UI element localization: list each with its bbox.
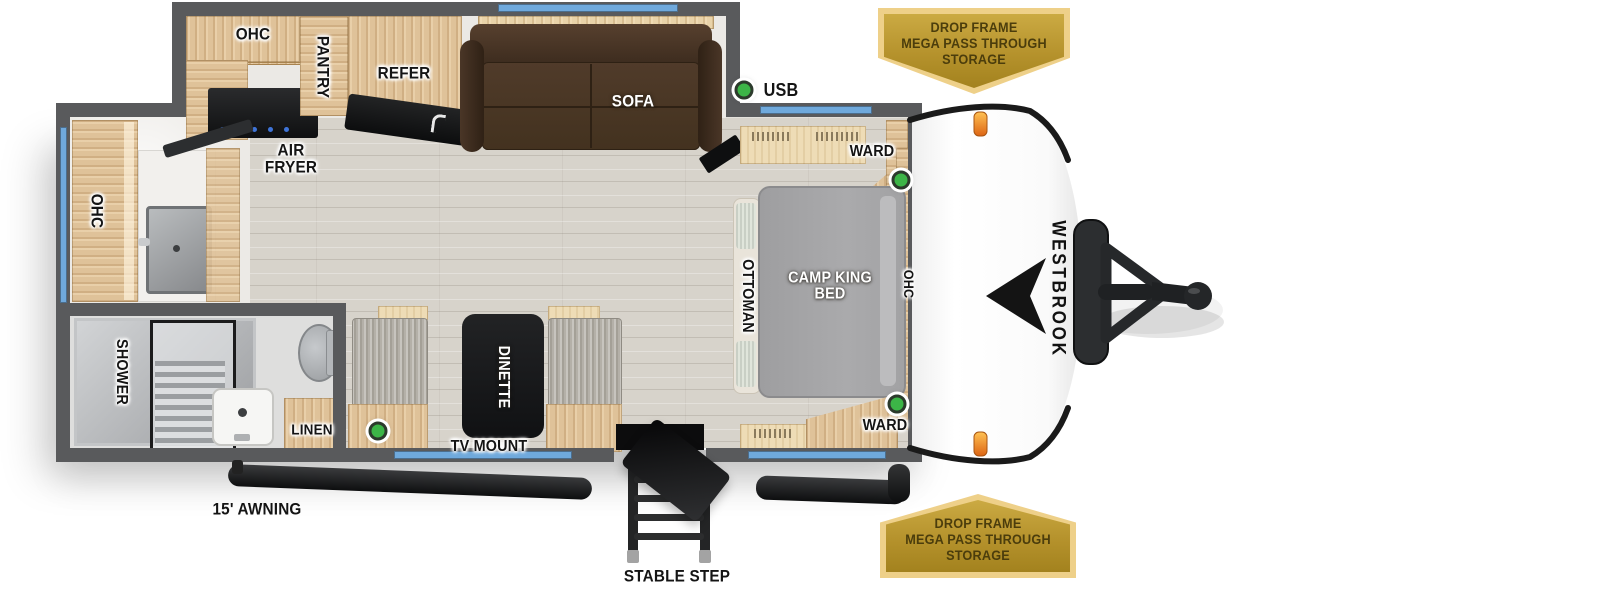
label-refer: REFER xyxy=(378,64,431,81)
label-ward-top: WARD xyxy=(850,144,895,160)
label-usb: USB xyxy=(764,81,799,99)
label-sofa: SOFA xyxy=(612,92,654,109)
awning-tube xyxy=(228,464,593,500)
label-ward-bottom: WARD xyxy=(863,418,908,434)
wall-top-rear xyxy=(56,103,186,117)
usb-indicator-dot xyxy=(892,171,911,190)
hitch-tongue-bar xyxy=(1098,284,1154,300)
marker-light-bottom xyxy=(974,432,987,456)
slideout-wall-right xyxy=(726,2,740,117)
label-shower: SHOWER xyxy=(113,339,129,405)
label-dinette: DINETTE xyxy=(495,346,511,409)
label-ohc-bedroom: OHC xyxy=(902,270,916,299)
badge-line: DROP FRAME xyxy=(884,20,1064,36)
usb-legend-dot xyxy=(735,81,754,100)
bathroom-sink xyxy=(146,206,212,294)
label-stable-step: STABLE STEP xyxy=(624,567,730,584)
dinette-left-cabinet xyxy=(348,404,428,452)
bathroom-faucet-icon xyxy=(138,238,150,246)
kitchen-faucet-icon xyxy=(431,113,447,134)
shower-room-sink xyxy=(212,388,274,446)
badge-line: MEGA PASS THROUGH xyxy=(886,532,1070,548)
slideout-wall-left xyxy=(172,2,186,117)
dinette-left-bench xyxy=(352,318,428,414)
usb-indicator-dot xyxy=(369,422,388,441)
label-pantry: PANTRY xyxy=(314,36,331,98)
label-awning: 15' AWNING xyxy=(212,500,301,517)
bathroom-tall-cabinet xyxy=(206,148,240,302)
storage-badge-bottom: DROP FRAME MEGA PASS THROUGH STORAGE xyxy=(880,494,1076,578)
storage-badge-top: DROP FRAME MEGA PASS THROUGH STORAGE xyxy=(878,8,1070,94)
awning-bracket xyxy=(232,460,243,474)
badge-line: DROP FRAME xyxy=(886,516,1070,532)
usb-indicator-dot xyxy=(888,395,907,414)
label-linen: LINEN xyxy=(291,422,332,437)
label-air-fryer: AIR FRYER xyxy=(262,142,320,177)
label-tv-mount: TV MOUNT xyxy=(451,439,528,455)
badge-line: STORAGE xyxy=(884,52,1064,68)
label-camp-king-bed: CAMP KING BED xyxy=(787,271,873,304)
sofa xyxy=(460,22,722,152)
step-rung xyxy=(634,533,704,540)
bedroom-top-ward-shelf xyxy=(740,126,866,164)
dinette-right-cabinet xyxy=(546,404,622,452)
dinette-right-bench xyxy=(548,318,622,414)
window-bedroom-offdoor xyxy=(760,106,872,114)
step-foot xyxy=(627,550,639,563)
window-bedroom-doorside xyxy=(748,451,886,459)
step-foot xyxy=(699,550,711,563)
brand-name: WESTBROOK xyxy=(1048,220,1067,357)
marker-light-top xyxy=(974,112,987,136)
wall-bath-divider xyxy=(70,303,346,316)
wall-shower-divider xyxy=(333,303,346,462)
label-ohc-bathroom: OHC xyxy=(88,194,105,229)
hitch-coupler-knob xyxy=(1184,282,1212,310)
front-cap-and-hitch xyxy=(900,90,1240,510)
label-ottoman: OTTOMAN xyxy=(739,259,755,333)
badge-line: STORAGE xyxy=(886,548,1070,564)
badge-line: MEGA PASS THROUGH xyxy=(884,36,1064,52)
window-slideout xyxy=(498,4,678,12)
floorplan-page: DROP FRAME MEGA PASS THROUGH STORAGE DRO… xyxy=(0,0,1600,598)
label-ohc-kitchen: OHC xyxy=(236,25,271,42)
window-rear-side xyxy=(60,127,67,303)
